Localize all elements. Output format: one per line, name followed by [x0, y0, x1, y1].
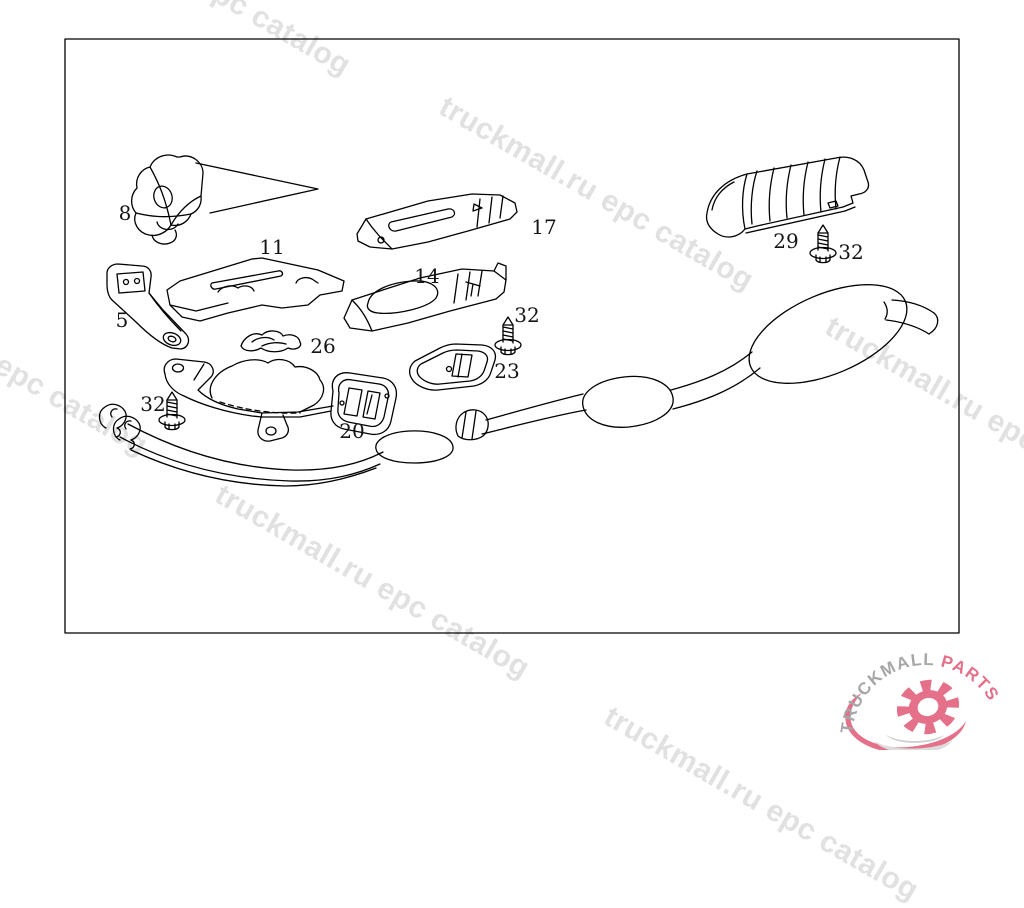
part-label-20: 20 — [339, 419, 364, 443]
part-label-17: 17 — [531, 215, 556, 239]
gear-icon — [898, 679, 959, 735]
logo-swoosh-gray-inner — [886, 735, 944, 743]
part-label-32-mid: 32 — [514, 303, 539, 327]
part-11-heat-shield — [167, 258, 344, 321]
part-label-14: 14 — [414, 264, 439, 288]
logo-text-parts: PARTS — [939, 652, 1003, 705]
part-label-5: 5 — [116, 308, 129, 332]
diagram-border — [65, 39, 959, 633]
part-29-heat-shield — [707, 157, 869, 237]
epc-catalog-page: { "watermark": { "text": "truckmall.ru e… — [0, 0, 1024, 750]
screw-32-right — [810, 225, 836, 263]
part-label-29: 29 — [773, 229, 798, 253]
part-26-clamp — [241, 331, 301, 352]
part-label-32-right: 32 — [838, 240, 863, 264]
part-label-32-left: 32 — [140, 392, 165, 416]
part-17-heat-shield — [357, 194, 517, 249]
part-label-23: 23 — [494, 359, 519, 383]
truckmall-parts-logo: TRUCKMALL PARTS — [838, 643, 1018, 750]
part-label-8: 8 — [119, 201, 132, 225]
part-label-11: 11 — [259, 235, 284, 259]
part-label-26: 26 — [310, 334, 335, 358]
part-8-bracket — [132, 155, 318, 244]
part-23-heat-shield — [410, 344, 496, 390]
